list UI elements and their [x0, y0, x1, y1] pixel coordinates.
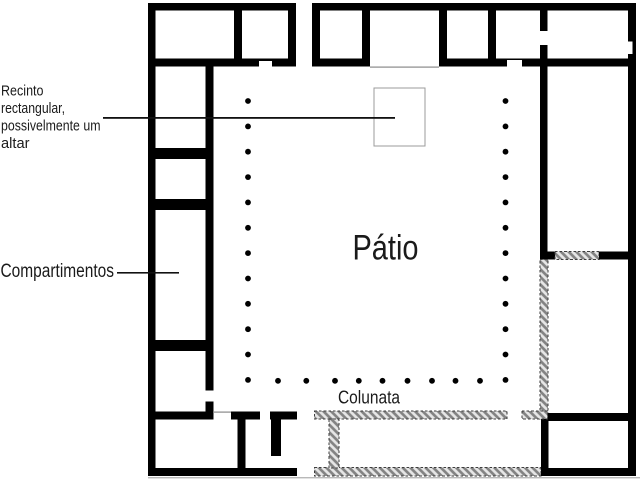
svg-text:Colunata: Colunata [338, 386, 401, 407]
svg-text:altar: altar [1, 136, 30, 152]
svg-text:Pátio: Pátio [353, 228, 419, 268]
svg-text:rectangular,: rectangular, [1, 101, 65, 117]
svg-text:Compartimentos: Compartimentos [1, 261, 115, 282]
svg-text:Recinto: Recinto [1, 83, 44, 99]
svg-text:possivelmente um: possivelmente um [1, 119, 101, 135]
